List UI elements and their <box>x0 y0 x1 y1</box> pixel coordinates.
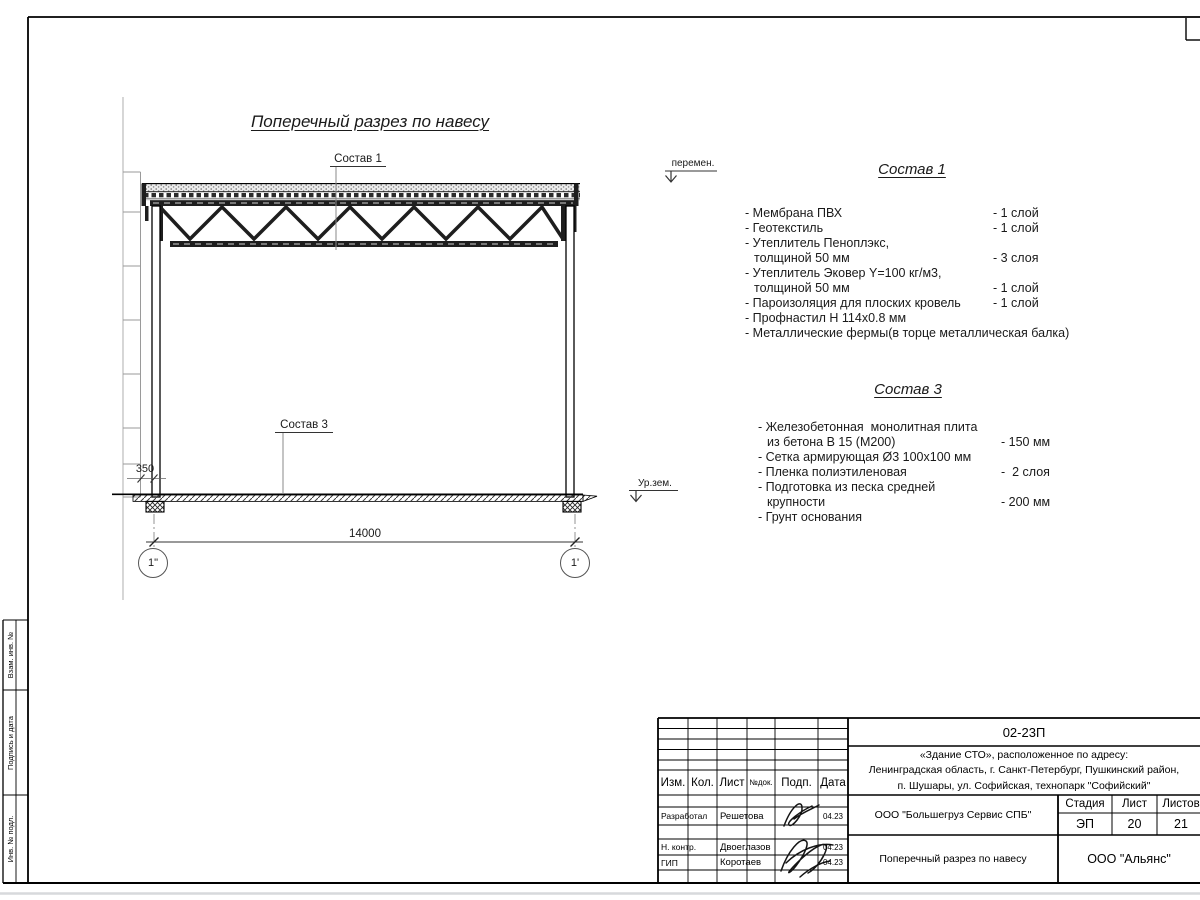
truss <box>150 200 576 247</box>
person-name: Решетова <box>720 807 775 825</box>
level-label-ground: Ур.зем. <box>631 477 679 489</box>
titleblock-company: ООО "Большегруз Сервис СПБ" <box>848 795 1058 835</box>
sheets-label: Листов <box>1157 795 1200 813</box>
stage-value: ЭП <box>1058 813 1112 835</box>
margin-label-inv: Инв. № подл. <box>4 796 16 882</box>
sostav1-heading: Состав 1 <box>845 159 979 179</box>
dim-span-label: 14000 <box>338 527 392 540</box>
sostav3-heading: Состав 3 <box>841 379 975 399</box>
titleblock-doc-number: 02-23П <box>848 718 1200 746</box>
drawing-title: Поперечный разрез по навесу <box>245 111 495 133</box>
ladder <box>123 172 141 497</box>
material-row: из бетона В 15 (М200)- 150 мм <box>758 435 1088 450</box>
material-row: - Профнастил Н 114х0.8 мм <box>745 311 1085 326</box>
person-date: 04.23 <box>818 807 848 825</box>
col-kol: Кол. <box>688 770 717 795</box>
callout-sostav1: Состав 1 <box>330 151 386 167</box>
col-podp: Подп. <box>775 770 818 795</box>
col-data: Дата <box>818 770 848 795</box>
material-row: крупности- 200 мм <box>758 495 1088 510</box>
material-row: - Утеплитель Эковер Y=100 кг/м3, <box>745 266 1085 281</box>
col-izm: Изм. <box>658 770 688 795</box>
material-row: толщиной 50 мм- 3 слоя <box>745 251 1085 266</box>
right-footing <box>563 501 581 512</box>
sostav1-list: - Мембрана ПВХ- 1 слой - Геотекстиль- 1 … <box>745 206 1085 341</box>
material-row: - Геотекстиль- 1 слой <box>745 221 1085 236</box>
person-role: Н. контр. <box>661 839 717 855</box>
object-line: п. Шушары, ул. Софийская, технопарк "Соф… <box>848 778 1200 794</box>
material-row: - Мембрана ПВХ- 1 слой <box>745 206 1085 221</box>
person-date: 04.23 <box>818 839 848 855</box>
material-row: - Утеплитель Пеноплэкс, <box>745 236 1085 251</box>
axis-label-right: 1' <box>560 556 590 570</box>
margin-label-podpis: Подпись и дата <box>4 693 16 793</box>
object-line: Ленинградская область, г. Санкт-Петербур… <box>848 763 1200 779</box>
titleblock-object: «Здание СТО», расположенное по адресу: Л… <box>848 747 1200 794</box>
person-name: Коротаев <box>720 855 775 870</box>
sostav3-list: - Железобетонная монолитная плита из бет… <box>758 420 1088 525</box>
sheet-label: Лист <box>1112 795 1157 813</box>
section-drawing <box>112 97 717 600</box>
material-row: - Железобетонная монолитная плита <box>758 420 1088 435</box>
drawing-sheet: Поперечный разрез по навесу Состав 1 Сос… <box>0 0 1200 900</box>
dim-offset-label: 350 <box>128 462 162 475</box>
right-column <box>566 206 574 497</box>
person-name: Двоеглазов <box>720 839 775 855</box>
col-ndok: №док. <box>747 770 775 795</box>
material-row: - Грунт основания <box>758 510 1088 525</box>
titleblock-org: ООО "Альянс" <box>1058 835 1200 883</box>
level-mark-ground <box>629 491 678 502</box>
left-column <box>152 206 160 497</box>
axis-label-left: 1" <box>138 556 168 570</box>
sheet-value: 20 <box>1112 813 1157 835</box>
callout-sostav3: Состав 3 <box>275 417 333 433</box>
margin-label-vzam: Взам. инв. № <box>4 620 16 690</box>
roof-assembly <box>142 183 581 232</box>
material-row: - Пленка полиэтиленовая- 2 слоя <box>758 465 1088 480</box>
person-role: ГИП <box>661 855 717 870</box>
material-row: толщиной 50 мм- 1 слой <box>745 281 1085 296</box>
stage-label: Стадия <box>1058 795 1112 813</box>
material-row: - Подготовка из песка средней <box>758 480 1088 495</box>
sheets-value: 21 <box>1157 813 1200 835</box>
person-date: 04.23 <box>818 855 848 870</box>
left-footing <box>146 501 164 512</box>
material-row: - Металлические фермы(в торце металличес… <box>745 326 1085 341</box>
col-list: Лист <box>717 770 747 795</box>
floor-slab <box>112 494 597 512</box>
level-label-top: перемен. <box>667 157 719 169</box>
titleblock-doc-title: Поперечный разрез по навесу <box>848 835 1058 883</box>
level-mark-top <box>665 171 717 182</box>
material-row: - Пароизоляция для плоских кровель- 1 сл… <box>745 296 1085 311</box>
material-row: - Сетка армирующая Ø3 100х100 мм <box>758 450 1088 465</box>
object-line: «Здание СТО», расположенное по адресу: <box>848 747 1200 763</box>
person-role: Разработал <box>661 807 717 825</box>
